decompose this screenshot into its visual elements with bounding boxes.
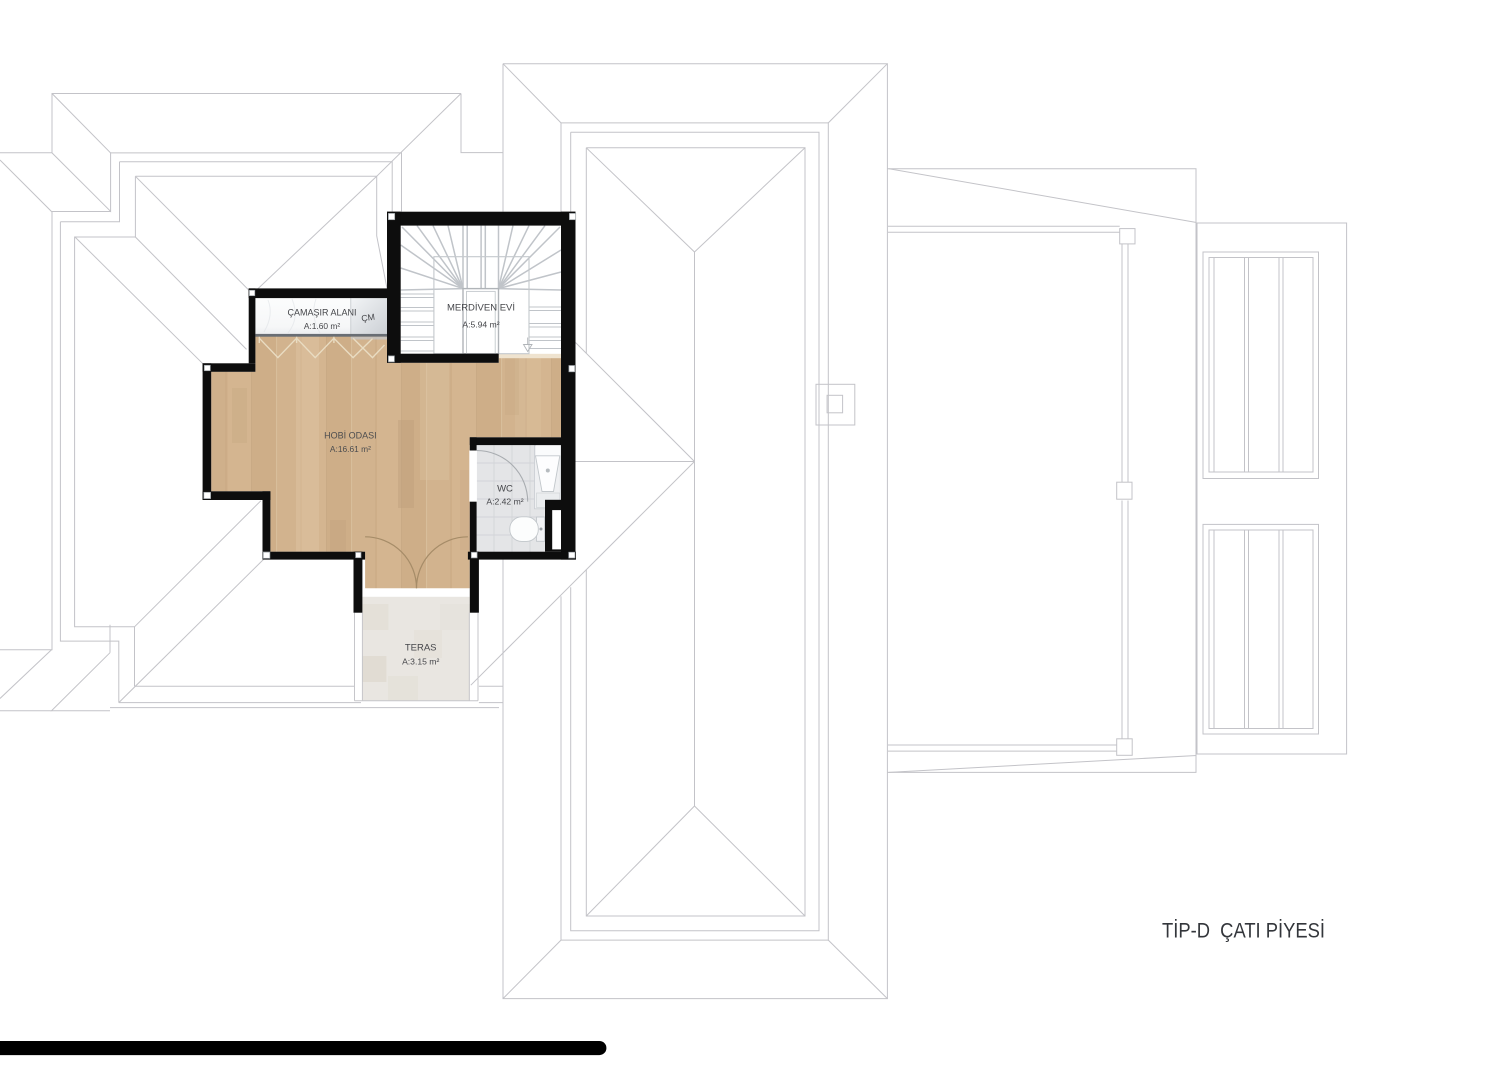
svg-text:TİP-D ÇATI PİYESİ: TİP-D ÇATI PİYESİ (1162, 920, 1325, 943)
svg-text:A:2.42 m²: A:2.42 m² (486, 497, 523, 507)
svg-text:WC: WC (497, 484, 513, 495)
svg-text:TERAS: TERAS (405, 643, 437, 654)
svg-text:A:1.60 m²: A:1.60 m² (304, 321, 341, 331)
svg-text:A:3.15 m²: A:3.15 m² (402, 657, 439, 667)
svg-text:MERDİVEN EVİ: MERDİVEN EVİ (447, 303, 515, 314)
svg-text:HOBİ ODASI: HOBİ ODASI (324, 431, 377, 441)
svg-text:ÇAMAŞIR ALANI: ÇAMAŞIR ALANI (287, 308, 356, 318)
svg-text:ÇM: ÇM (361, 312, 376, 324)
svg-text:A:16.61 m²: A:16.61 m² (330, 444, 371, 454)
svg-text:A:5.94 m²: A:5.94 m² (462, 320, 499, 330)
